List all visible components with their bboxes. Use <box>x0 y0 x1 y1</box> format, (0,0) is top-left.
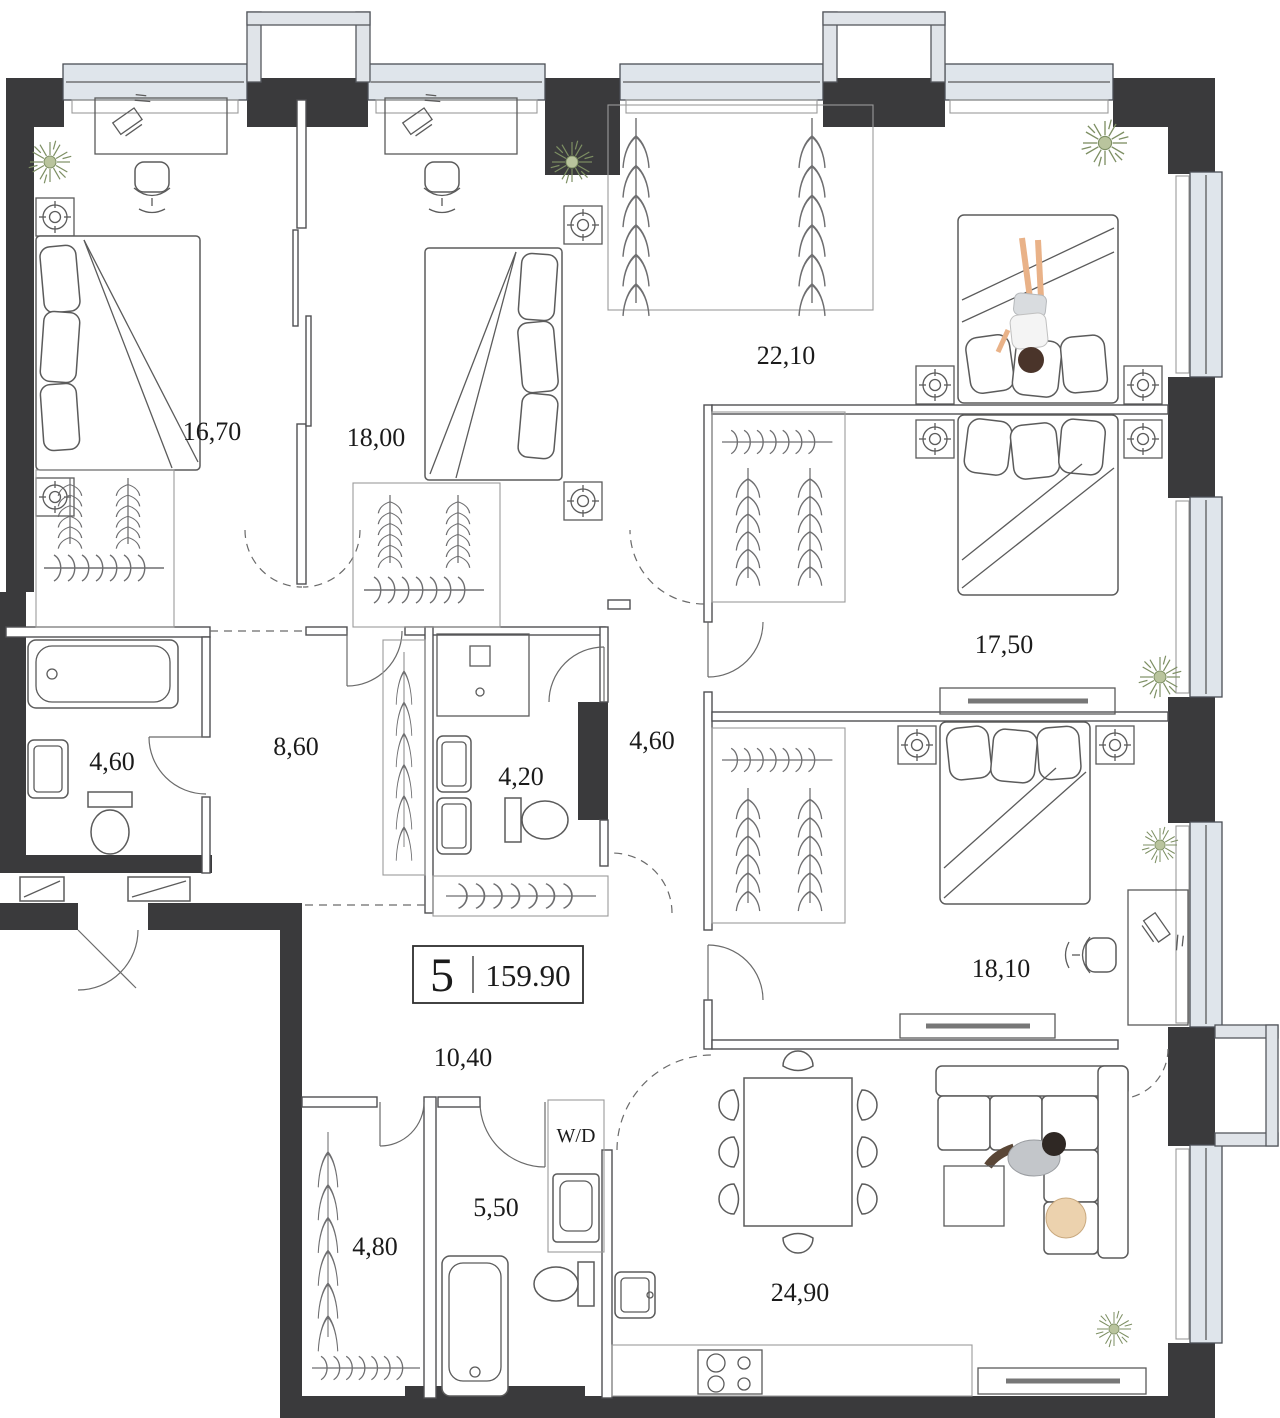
room-bedroom-1: 16,70 <box>29 90 242 627</box>
room-wardrobe: 4,80 <box>312 1132 420 1380</box>
room-label: 18,00 <box>347 423 406 452</box>
wd-label: W/D <box>557 1125 596 1147</box>
floor-plan-drawing: 16,70 18,00 <box>0 0 1280 1418</box>
nightstand-lamp-icon <box>916 420 954 458</box>
sink <box>437 736 471 792</box>
nightstand-lamp-icon <box>36 198 74 236</box>
coffee-table <box>944 1166 1004 1226</box>
sink <box>28 740 68 798</box>
bed <box>36 236 200 470</box>
room-label: 22,10 <box>757 341 816 370</box>
room-label: 24,90 <box>771 1278 830 1307</box>
room-label: 4,60 <box>629 726 675 755</box>
nightstand-lamp-icon <box>1124 420 1162 458</box>
bag <box>1046 1198 1086 1238</box>
dining-table <box>719 1051 877 1253</box>
room-label: 4,20 <box>498 762 544 791</box>
room-label: 10,40 <box>434 1043 493 1072</box>
room-bedroom-5: 18,10 <box>712 722 1188 1038</box>
entry <box>20 877 190 901</box>
balcony-top-left <box>247 12 370 82</box>
dressing-area <box>608 105 873 316</box>
sink <box>437 798 471 854</box>
wardrobe <box>712 412 845 602</box>
unit-total-area: 159.90 <box>485 958 570 993</box>
room-shower: 4,20 <box>437 634 568 854</box>
room-label: 5,50 <box>473 1193 519 1222</box>
bed <box>940 722 1090 904</box>
room-label: 4,80 <box>352 1232 398 1261</box>
kitchen-sink <box>615 1272 655 1318</box>
laptop-icon <box>1140 907 1188 958</box>
nightstand-lamp-icon <box>1096 726 1134 764</box>
room-label: 17,50 <box>975 630 1034 659</box>
balcony-right <box>1215 1025 1278 1146</box>
nightstand-lamp-icon <box>1124 366 1162 404</box>
toilet <box>534 1262 594 1306</box>
plant-icon <box>1139 656 1182 699</box>
stove <box>698 1350 762 1394</box>
bathtub <box>442 1256 508 1396</box>
room-hallway: 4,60 <box>629 726 675 755</box>
toilet <box>88 792 132 854</box>
desk <box>1128 890 1188 1025</box>
toilet <box>505 798 568 842</box>
closet <box>383 640 425 875</box>
wd-closet: W/D <box>548 1100 604 1252</box>
bed <box>425 248 562 480</box>
nightstand-lamp-icon <box>564 482 602 520</box>
room-bedroom-4: 17,50 <box>712 412 1181 714</box>
plant-icon <box>29 141 72 184</box>
bathtub <box>28 640 178 708</box>
room-label: 18,10 <box>972 954 1031 983</box>
room-label: 8,60 <box>273 732 319 761</box>
desk-chair <box>424 162 460 213</box>
nightstand-lamp-icon <box>564 206 602 244</box>
nightstand-lamp-icon <box>898 726 936 764</box>
desk-chair <box>134 162 170 213</box>
room-living-kitchen: 24,90 <box>612 1051 1146 1396</box>
room-bathroom-1: 4,60 <box>28 640 178 854</box>
shower <box>437 634 529 716</box>
closet <box>36 470 174 627</box>
closet <box>353 483 500 627</box>
plant-icon <box>1096 1311 1132 1347</box>
unit-number: 5 <box>430 949 454 1002</box>
nightstand-lamp-icon <box>916 366 954 404</box>
coat-rack <box>433 876 608 916</box>
floor-plan: 16,70 18,00 <box>0 0 1280 1418</box>
room-bedroom-3: 22,10 <box>608 105 1162 404</box>
room-label: 4,60 <box>89 747 135 776</box>
room-label: 16,70 <box>183 417 242 446</box>
nightstand-lamp-icon <box>36 478 74 516</box>
plant-icon <box>1142 827 1178 863</box>
balcony-top-right <box>823 12 945 82</box>
wardrobe <box>712 728 845 923</box>
desk-chair <box>1066 937 1117 973</box>
bed <box>958 415 1118 595</box>
unit-info-box: 5 159.90 <box>413 946 583 1003</box>
